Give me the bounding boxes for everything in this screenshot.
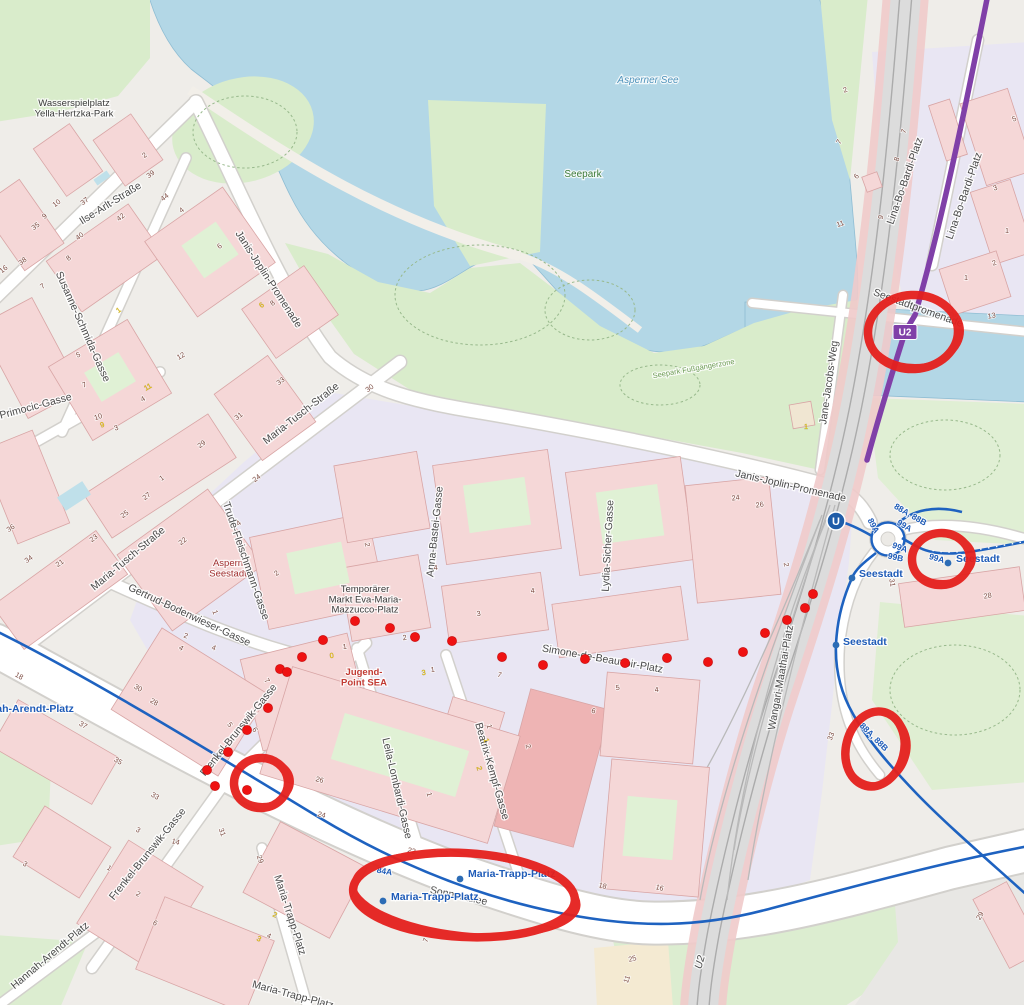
bus-stop-label: Maria-Trapp-Platz (391, 891, 479, 903)
red-route-dot (210, 781, 219, 790)
red-route-dot (738, 647, 747, 656)
bus-stop-label: Seestadt (859, 568, 903, 580)
house-number: 1 (1005, 226, 1009, 235)
red-route-dot (497, 652, 506, 661)
house-number: 13 (987, 310, 997, 320)
red-route-dot (202, 765, 211, 774)
map-image: WasserspielplatzYella-Hertzka-ParkAspern… (0, 0, 1024, 1005)
bus-stop-marker[interactable] (833, 642, 840, 649)
red-route-dot (538, 660, 547, 669)
red-route-dot (620, 658, 629, 667)
red-route-dot (703, 657, 712, 666)
house-number: 1 (804, 422, 808, 431)
bus-stop-marker[interactable] (380, 898, 387, 905)
red-route-dot (282, 667, 291, 676)
house-number: 24 (731, 493, 740, 503)
place-label-seepark: Seepark (564, 169, 602, 180)
red-route-dot (447, 636, 456, 645)
red-route-dot (760, 628, 769, 637)
red-route-dot (223, 747, 232, 756)
bus-stop-label: Hannah-Arendt-Platz (0, 703, 74, 715)
map-canvas[interactable]: WasserspielplatzYella-Hertzka-ParkAspern… (0, 0, 1024, 1005)
subway-station-letter: U (832, 516, 840, 528)
red-route-dot (242, 725, 251, 734)
place-label-asperner-see: Asperner See (616, 75, 679, 86)
red-route-dot (782, 615, 791, 624)
bus-stop-marker[interactable] (945, 560, 952, 567)
building (334, 451, 430, 542)
red-route-dot (808, 589, 817, 598)
u2-line-badge-label: U2 (899, 328, 912, 339)
place-label-wasserspielplatz-yella-hertzka-park: WasserspielplatzYella-Hertzka-Park (35, 98, 114, 119)
bus-stop-label: Seestadt (843, 636, 887, 648)
courtyard (622, 796, 677, 860)
red-route-dot (385, 623, 394, 632)
house-number: 1 (964, 273, 968, 282)
bus-stop-label: Seestadt (956, 553, 1000, 565)
red-route-dot (263, 703, 272, 712)
red-route-dot (662, 653, 671, 662)
red-route-dot (318, 635, 327, 644)
bus-stop-marker[interactable] (849, 575, 856, 582)
red-route-dot (580, 654, 589, 663)
red-route-dot (297, 652, 306, 661)
house-number: 26 (755, 500, 764, 510)
red-route-dot (242, 785, 251, 794)
red-route-dot (350, 616, 359, 625)
red-route-dot (800, 603, 809, 612)
house-number: 28 (983, 590, 993, 600)
bus-stop-marker[interactable] (457, 876, 464, 883)
place-label-jugend-point-sea: Jugend-Point SEA (341, 667, 387, 688)
building (789, 401, 815, 428)
red-route-dot (410, 632, 419, 641)
courtyard (463, 477, 531, 533)
